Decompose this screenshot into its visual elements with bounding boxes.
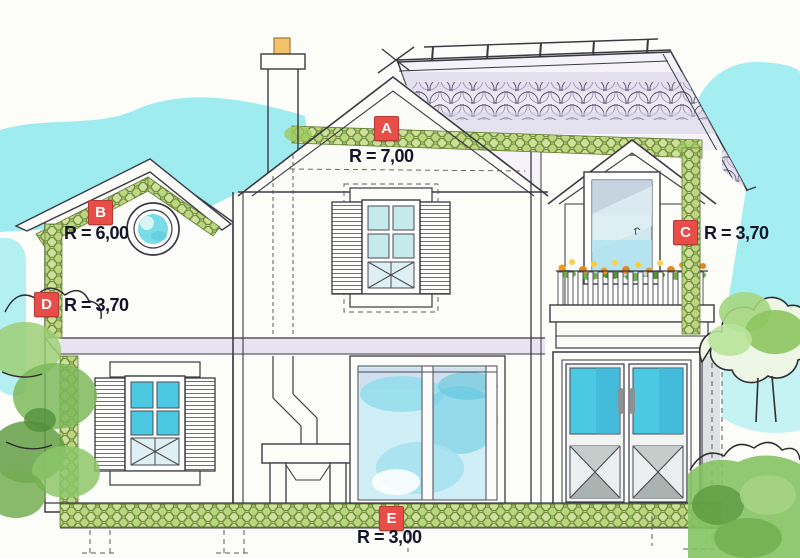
sliding-door [350,356,505,504]
label-c-value: R = 3,70 [704,223,769,244]
shutter-right [420,202,450,294]
entry-door [548,352,705,520]
upper-window [332,184,450,312]
label-e-value: R = 3,00 [357,527,422,548]
label-b-badge: B [88,200,113,225]
label-d-value: R = 3,70 [64,295,129,316]
shutter-left [95,378,125,471]
house-section-drawing [0,0,800,558]
insulation-d-strip-upper [45,224,62,338]
label-b-value: R = 6,00 [64,223,129,244]
annex-window [95,362,215,485]
label-a-value: R = 7,00 [349,146,414,167]
floor-slab [60,338,545,354]
railing [558,272,703,305]
door-handle [630,388,635,414]
door-panel-right [633,446,683,498]
label-c-badge: C [673,220,698,245]
shutter-right [185,378,215,471]
door-handle [618,388,623,414]
house-section-diagram: A R = 7,00 B R = 6,00 C R = 3,70 D R = 3… [0,0,800,558]
label-a-badge: A [374,116,399,141]
round-window [127,203,179,255]
shutter-left [332,202,362,294]
label-d-badge: D [34,292,59,317]
door-panel-left [570,446,620,498]
